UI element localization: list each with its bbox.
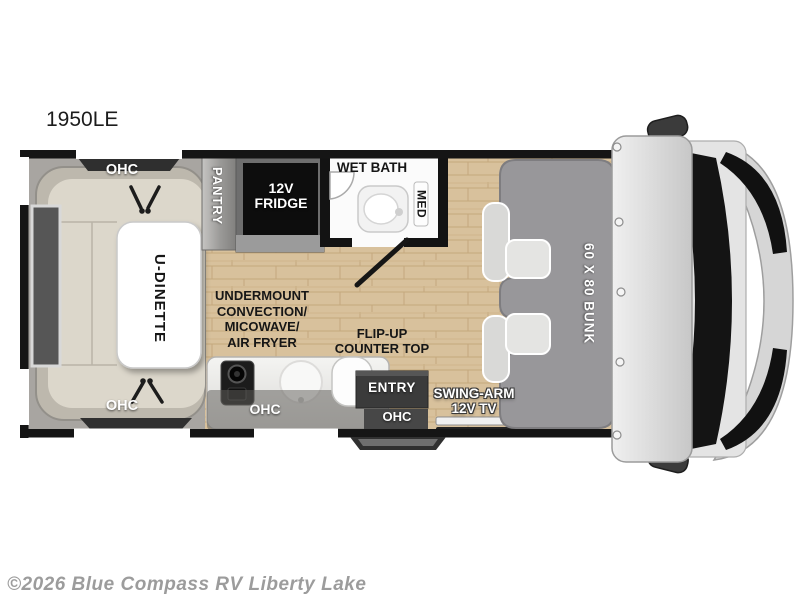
- toilet-icon: [358, 186, 408, 232]
- med-cabinet: [414, 182, 428, 226]
- cab-rear-panel: [612, 136, 692, 462]
- dinette-window: [32, 206, 60, 366]
- bottom-slide-marker: [80, 418, 192, 429]
- floorplan-page: 1950LE OHC OHC U-DINETTE PANTRY 12V FRID…: [0, 0, 800, 600]
- top-slide-marker: [78, 158, 180, 171]
- copyright-watermark: ©2026 Blue Compass RV Liberty Lake: [7, 574, 366, 596]
- entry-cabinet: [356, 371, 428, 430]
- truck-cab: [612, 114, 793, 475]
- bunk: [500, 160, 614, 428]
- entry-step: [350, 437, 446, 450]
- fridge-cabinet: [236, 158, 324, 252]
- floorplan-graphic: [0, 0, 800, 600]
- pantry-cabinet: [202, 158, 238, 250]
- dinette-table: [117, 222, 201, 368]
- page-title: 1950LE: [46, 108, 118, 132]
